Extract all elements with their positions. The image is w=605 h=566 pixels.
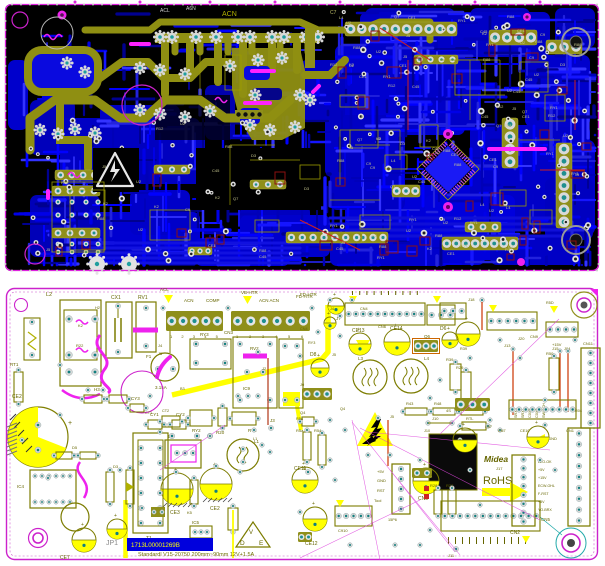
svg-text:J11: J11 [448, 553, 455, 558]
svg-text:K2: K2 [482, 31, 488, 36]
svg-text:U2: U2 [138, 227, 144, 232]
svg-text:L4: L4 [391, 158, 396, 163]
svg-text:R88: R88 [483, 57, 491, 62]
svg-text:CE1: CE1 [359, 74, 368, 79]
svg-text:C45: C45 [525, 77, 533, 82]
svg-text:CE14: CE14 [390, 326, 403, 332]
svg-text:R88: R88 [353, 45, 361, 50]
svg-text:RY1: RY1 [486, 42, 494, 47]
svg-text:C910: C910 [338, 528, 348, 533]
svg-text:+: + [317, 353, 320, 359]
svg-text:R88: R88 [225, 144, 233, 149]
svg-text:U2: U2 [435, 150, 441, 155]
svg-text:RY1: RY1 [546, 151, 554, 156]
svg-text:RY3: RY3 [200, 332, 209, 337]
svg-text:D8: D8 [310, 352, 317, 358]
svg-text:+5V: +5V [377, 469, 385, 474]
svg-text:Q7: Q7 [233, 196, 239, 201]
svg-text:15P6: 15P6 [388, 518, 397, 522]
svg-text:A6N: A6N [186, 6, 196, 12]
svg-text:RT1: RT1 [10, 362, 19, 367]
svg-text:Q7: Q7 [394, 14, 400, 19]
svg-text:R12: R12 [330, 62, 338, 67]
svg-text:CT1: CT1 [145, 411, 152, 415]
svg-text:H3: H3 [94, 387, 100, 392]
svg-text:Standardl V15-20750 200mm~90: Standardl V15-20750 200mm~90mm 12V+1.5A [138, 552, 255, 558]
svg-text:R50: R50 [546, 351, 554, 356]
svg-text:+: + [465, 316, 468, 322]
svg-text:J20: J20 [518, 336, 525, 341]
svg-text:D3: D3 [113, 464, 119, 469]
svg-text:ACL: ACL [160, 8, 170, 14]
svg-text:CN6: CN6 [378, 324, 387, 329]
svg-text:CE1: CE1 [408, 15, 417, 20]
svg-text:RY1: RY1 [470, 220, 478, 225]
svg-text:E: E [259, 540, 264, 547]
svg-text:ACN: ACN [184, 298, 194, 303]
svg-text:CE1: CE1 [208, 243, 217, 248]
svg-text:R22: R22 [76, 343, 84, 348]
svg-text:K2: K2 [78, 323, 84, 328]
svg-text:RY1: RY1 [383, 74, 391, 79]
svg-text:D3: D3 [304, 186, 310, 191]
svg-text:R88: R88 [507, 14, 515, 19]
svg-text:CN4: CN4 [300, 327, 308, 331]
svg-text:ECW-OHL: ECW-OHL [538, 484, 555, 488]
svg-text:Q4: Q4 [340, 407, 345, 411]
svg-text:R88: R88 [97, 216, 105, 221]
svg-text:L3: L3 [358, 356, 364, 361]
svg-text:L1: L1 [253, 437, 257, 441]
svg-text:+5V: +5V [538, 500, 545, 504]
svg-text:Q7: Q7 [390, 184, 396, 189]
svg-text:D3: D3 [400, 141, 406, 146]
svg-text:K2: K2 [103, 201, 109, 206]
svg-text:L4: L4 [480, 202, 485, 207]
svg-text:CN5: CN5 [541, 517, 550, 522]
svg-text:RTL: RTL [466, 416, 474, 421]
svg-text:CE13: CE13 [352, 328, 365, 334]
svg-text:C9: C9 [185, 207, 191, 212]
svg-text:D3: D3 [441, 26, 447, 31]
svg-text:C9: C9 [440, 217, 446, 222]
svg-text:D3: D3 [560, 62, 566, 67]
svg-text:CE7: CE7 [60, 555, 70, 561]
svg-text:Q7: Q7 [508, 244, 514, 249]
svg-text:U2: U2 [349, 63, 355, 68]
svg-text:R5a: R5a [296, 417, 304, 421]
svg-text:R88: R88 [259, 248, 267, 253]
svg-text:C9: C9 [540, 32, 546, 37]
svg-text:CE3: CE3 [170, 510, 180, 516]
svg-text:U2: U2 [406, 228, 412, 233]
svg-text:Tool: Tool [374, 498, 381, 503]
svg-text:J10: J10 [432, 416, 439, 421]
svg-text:4S: 4S [446, 408, 451, 413]
svg-text:IC4: IC4 [17, 484, 25, 489]
svg-text:U2: U2 [346, 20, 352, 25]
svg-text:U2: U2 [180, 121, 186, 126]
svg-text:ACN ACN: ACN ACN [259, 298, 279, 303]
svg-text:FD-HTR: FD-HTR [300, 292, 317, 297]
svg-text:CE1: CE1 [517, 28, 526, 33]
svg-text:R43: R43 [406, 401, 414, 406]
svg-text:YO-BRX: YO-BRX [538, 508, 552, 512]
svg-text:CN2: CN2 [510, 530, 520, 536]
svg-text:F-RST: F-RST [538, 492, 549, 496]
svg-text:3.15A: 3.15A [155, 385, 167, 390]
svg-text:CE1: CE1 [489, 157, 498, 162]
svg-text:R12: R12 [156, 126, 164, 131]
svg-text:L2: L2 [46, 292, 52, 298]
svg-text:CE1: CE1 [451, 152, 460, 157]
svg-text:+: + [423, 462, 426, 468]
svg-text:+5V: +5V [538, 468, 545, 472]
svg-text:RY1: RY1 [550, 105, 558, 110]
svg-text:+15V: +15V [538, 476, 547, 480]
svg-text:COMP: COMP [206, 298, 220, 303]
svg-text:GND: GND [377, 478, 386, 483]
svg-text:CN4: CN4 [360, 307, 368, 311]
svg-text:ACN: ACN [222, 11, 237, 18]
svg-text:+: + [333, 292, 336, 298]
svg-text:CT2: CT2 [162, 409, 169, 413]
svg-text:F1: F1 [146, 354, 152, 359]
svg-text:R88: R88 [535, 39, 543, 44]
svg-text:C7: C7 [330, 10, 337, 16]
svg-text:R12: R12 [496, 104, 504, 109]
svg-text:R88: R88 [443, 148, 451, 153]
svg-text:L4: L4 [424, 356, 430, 361]
svg-text:+: + [327, 311, 330, 317]
svg-text:IC5: IC5 [192, 520, 200, 525]
svg-text:C9: C9 [366, 161, 372, 166]
svg-text:RY1: RY1 [458, 18, 466, 23]
svg-text:C45: C45 [336, 246, 344, 251]
svg-text:R88: R88 [337, 158, 345, 163]
svg-text:1713L00001269B: 1713L00001269B [131, 542, 180, 549]
svg-text:C45: C45 [481, 114, 489, 119]
svg-text:L4: L4 [339, 15, 344, 20]
svg-text:U2: U2 [534, 72, 540, 77]
svg-text:R12: R12 [388, 83, 396, 88]
svg-text:R57: R57 [485, 425, 492, 429]
svg-text:RV1: RV1 [138, 295, 148, 301]
svg-text:R48: R48 [434, 401, 442, 406]
svg-text:RoHS: RoHS [483, 475, 512, 487]
svg-text:K5: K5 [187, 510, 193, 515]
svg-text:K2: K2 [427, 246, 433, 251]
svg-text:J5: J5 [390, 415, 394, 419]
svg-text:D: D [240, 540, 245, 547]
svg-text:R54: R54 [314, 428, 322, 433]
svg-text:L4: L4 [506, 205, 511, 210]
svg-text:R12: R12 [548, 113, 556, 118]
svg-text:K2: K2 [426, 138, 432, 143]
svg-text:Q7: Q7 [496, 123, 502, 128]
svg-text:RST: RST [377, 488, 386, 493]
svg-text:Q7: Q7 [357, 137, 363, 142]
svg-text:Q6: Q6 [424, 334, 431, 339]
svg-text:RY2: RY2 [192, 428, 201, 433]
svg-text:CN1: CN1 [566, 428, 575, 433]
svg-text:RY1: RY1 [409, 217, 417, 222]
svg-text:R88: R88 [454, 162, 462, 167]
svg-text:R28: R28 [430, 483, 438, 488]
svg-text:D5: D5 [72, 445, 78, 450]
svg-text:+: + [447, 326, 450, 332]
svg-text:J4: J4 [330, 307, 334, 311]
svg-text:+: + [68, 420, 72, 427]
svg-text:R5D: R5D [546, 301, 554, 305]
svg-text:J17: J17 [496, 466, 503, 471]
svg-text:C45: C45 [259, 254, 267, 259]
svg-text:D6: D6 [440, 326, 447, 332]
svg-text:C45: C45 [412, 84, 420, 89]
svg-text:D3: D3 [251, 153, 257, 158]
svg-text:R39: R39 [460, 347, 467, 351]
svg-text:K2: K2 [154, 204, 160, 209]
svg-text:+: + [535, 420, 538, 426]
svg-text:R88: R88 [574, 42, 582, 47]
svg-text:R27: R27 [446, 483, 454, 488]
svg-text:C9: C9 [493, 164, 499, 169]
svg-text:CX1: CX1 [111, 295, 121, 301]
svg-text:RY1: RY1 [460, 243, 468, 248]
svg-text:VB-HTR: VB-HTR [241, 290, 259, 295]
svg-text:C9: C9 [529, 55, 535, 60]
svg-text:V: V [249, 530, 253, 536]
svg-text:R39: R39 [446, 357, 454, 362]
svg-text:J18: J18 [468, 297, 475, 302]
svg-text:U2: U2 [507, 88, 513, 93]
svg-text:CY3: CY3 [131, 396, 140, 401]
svg-text:H2: H2 [95, 306, 100, 310]
svg-text:B3: B3 [180, 387, 185, 391]
svg-text:R12: R12 [454, 216, 462, 221]
svg-text:C45: C45 [418, 179, 426, 184]
svg-text:U2: U2 [359, 114, 365, 119]
svg-text:R5a: R5a [296, 428, 304, 433]
svg-text:+: + [81, 522, 84, 528]
svg-text:U2: U2 [520, 40, 526, 45]
svg-text:K2: K2 [215, 195, 221, 200]
svg-text:J13: J13 [504, 343, 511, 348]
svg-text:CE1: CE1 [447, 251, 456, 256]
svg-text:U2: U2 [412, 174, 418, 179]
svg-text:R88: R88 [435, 233, 443, 238]
svg-text:RY3: RY3 [308, 341, 315, 345]
svg-text:D3: D3 [490, 36, 496, 41]
svg-text:C45: C45 [513, 89, 521, 94]
svg-text:C45: C45 [212, 168, 220, 173]
svg-text:U2: U2 [376, 49, 382, 54]
svg-text:J5: J5 [332, 353, 336, 357]
svg-text:R29: R29 [456, 365, 464, 370]
svg-text:R88: R88 [379, 244, 387, 249]
svg-text:Midea: Midea [484, 454, 508, 464]
svg-text:R12: R12 [61, 180, 69, 185]
svg-text:R20: R20 [216, 430, 225, 435]
svg-text:CN11: CN11 [583, 341, 594, 346]
svg-text:CN9: CN9 [530, 334, 539, 339]
svg-text:U2: U2 [563, 133, 569, 138]
svg-text:RY1: RY1 [330, 223, 338, 228]
svg-text:K2: K2 [372, 233, 378, 238]
svg-text:R88: R88 [504, 123, 512, 128]
svg-text:RY1: RY1 [377, 255, 385, 260]
svg-text:CN7: CN7 [498, 429, 506, 433]
svg-text:R04: R04 [575, 409, 582, 413]
svg-text:IC9: IC9 [243, 386, 251, 391]
svg-text:CE1: CE1 [399, 63, 408, 68]
svg-text:+: + [462, 422, 465, 428]
svg-text:+: + [114, 513, 117, 519]
svg-text:CE2: CE2 [210, 506, 220, 512]
svg-text:J3: J3 [270, 418, 275, 423]
svg-text:+: + [312, 501, 315, 507]
svg-text:U2: U2 [489, 208, 495, 213]
svg-text:J10: J10 [424, 429, 430, 433]
svg-text:JP1: JP1 [106, 540, 118, 547]
svg-text:ACL: ACL [160, 287, 169, 292]
svg-text:Q4: Q4 [300, 410, 306, 415]
svg-text:CN3: CN3 [224, 330, 233, 335]
svg-text:CE1: CE1 [522, 114, 531, 119]
svg-text:U2: U2 [136, 179, 142, 184]
